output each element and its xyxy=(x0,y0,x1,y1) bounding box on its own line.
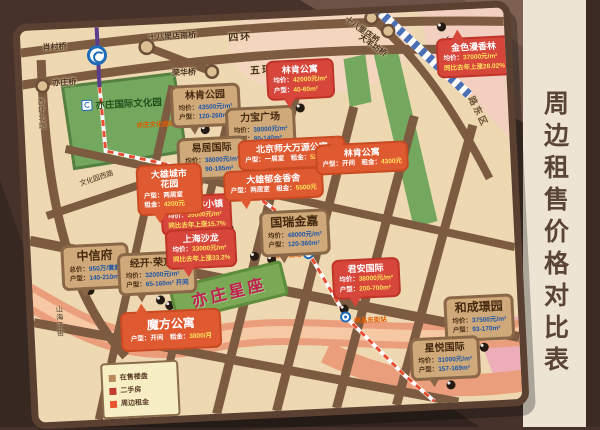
legend: 在售楼盘 二手房 周边租金 xyxy=(100,360,181,420)
side-strip xyxy=(586,0,600,427)
legend-item-onsale: 在售楼盘 xyxy=(109,370,171,383)
callout-mofang-apartment[interactable]: 魔方公寓 户型：开间 租金：3800/月 xyxy=(120,308,223,353)
callout-lincoln-apartment-sale[interactable]: 林肯公寓 均价：42000元/m² 户型：40-60m² xyxy=(265,58,335,101)
callout-junan-international[interactable]: 君安国际 均价：38000元/m² 户型：200-700m² xyxy=(331,257,401,300)
road-label-xihuanbeilu: 西环北路 xyxy=(35,98,47,130)
callout-hecheng-jingyuan[interactable]: 和成璟园 均价：37500元/m² 户型：93-170m² xyxy=(443,293,515,342)
callout-daxiong-tulip-house[interactable]: 大雄郁金香舍 户型：两居室 租金：5500元 xyxy=(223,166,324,202)
legend-item-rent: 周边租金 xyxy=(110,396,172,409)
callout-lincoln-apartment-rent[interactable]: 林肯公寓 户型：开间 租金：4300元 xyxy=(315,140,410,175)
callout-xingyue-international[interactable]: 星悦国际 均价：31000元/m² 户型：157-169m² xyxy=(409,335,481,382)
legend-swatch-onsale xyxy=(109,374,116,381)
side-panel: 周边租售价格对比表 xyxy=(523,0,586,427)
bridge-label-shibalidian-nanqiao: 十八里店南桥 xyxy=(148,29,196,42)
map-board[interactable]: 肖村桥 十八里店南桥 四环 五环 荣华桥 亦庄桥 十八里店桥 大羊坊桥 西环北路… xyxy=(12,0,529,430)
subway-logo-icon xyxy=(81,99,93,111)
page-title: 周边租售价格对比表 xyxy=(537,90,573,378)
callout-golden-manxianglin[interactable]: 金色漫香林 均价：37000元/m² 同比去年上涨28.02% xyxy=(436,35,513,79)
road-label-shanhaizijie: 山海子街 xyxy=(53,305,65,337)
station-label-rongchangdongjie: 荣昌东街站 xyxy=(354,313,387,325)
bridge-label-yizhuangqiao: 亦庄桥 xyxy=(52,76,77,88)
legend-item-secondhand: 二手房 xyxy=(109,383,171,396)
callout-shanghai-salon[interactable]: 上海沙龙 均价：33000元/m² 同比去年上涨33.2% xyxy=(165,227,238,271)
bridge-label-ronghuaqiao: 荣华桥 xyxy=(172,67,197,79)
legend-swatch-rent xyxy=(110,400,117,407)
callout-guorui-jinjia[interactable]: 国瑞金嘉 均价：48000元/m² 户型：120-360m² xyxy=(259,208,331,257)
station-label-wenhuayuan: 亦庄文化园站 xyxy=(136,118,175,130)
legend-swatch-secondhand xyxy=(109,387,116,394)
ring-road-4-label: 四环 xyxy=(228,28,253,44)
callout-daxiong-city-garden[interactable]: 大雄城市 花园 户型：两居室 租金：4200元 xyxy=(135,162,203,216)
bridge-label-xiaocunqiao: 肖村桥 xyxy=(42,41,67,53)
